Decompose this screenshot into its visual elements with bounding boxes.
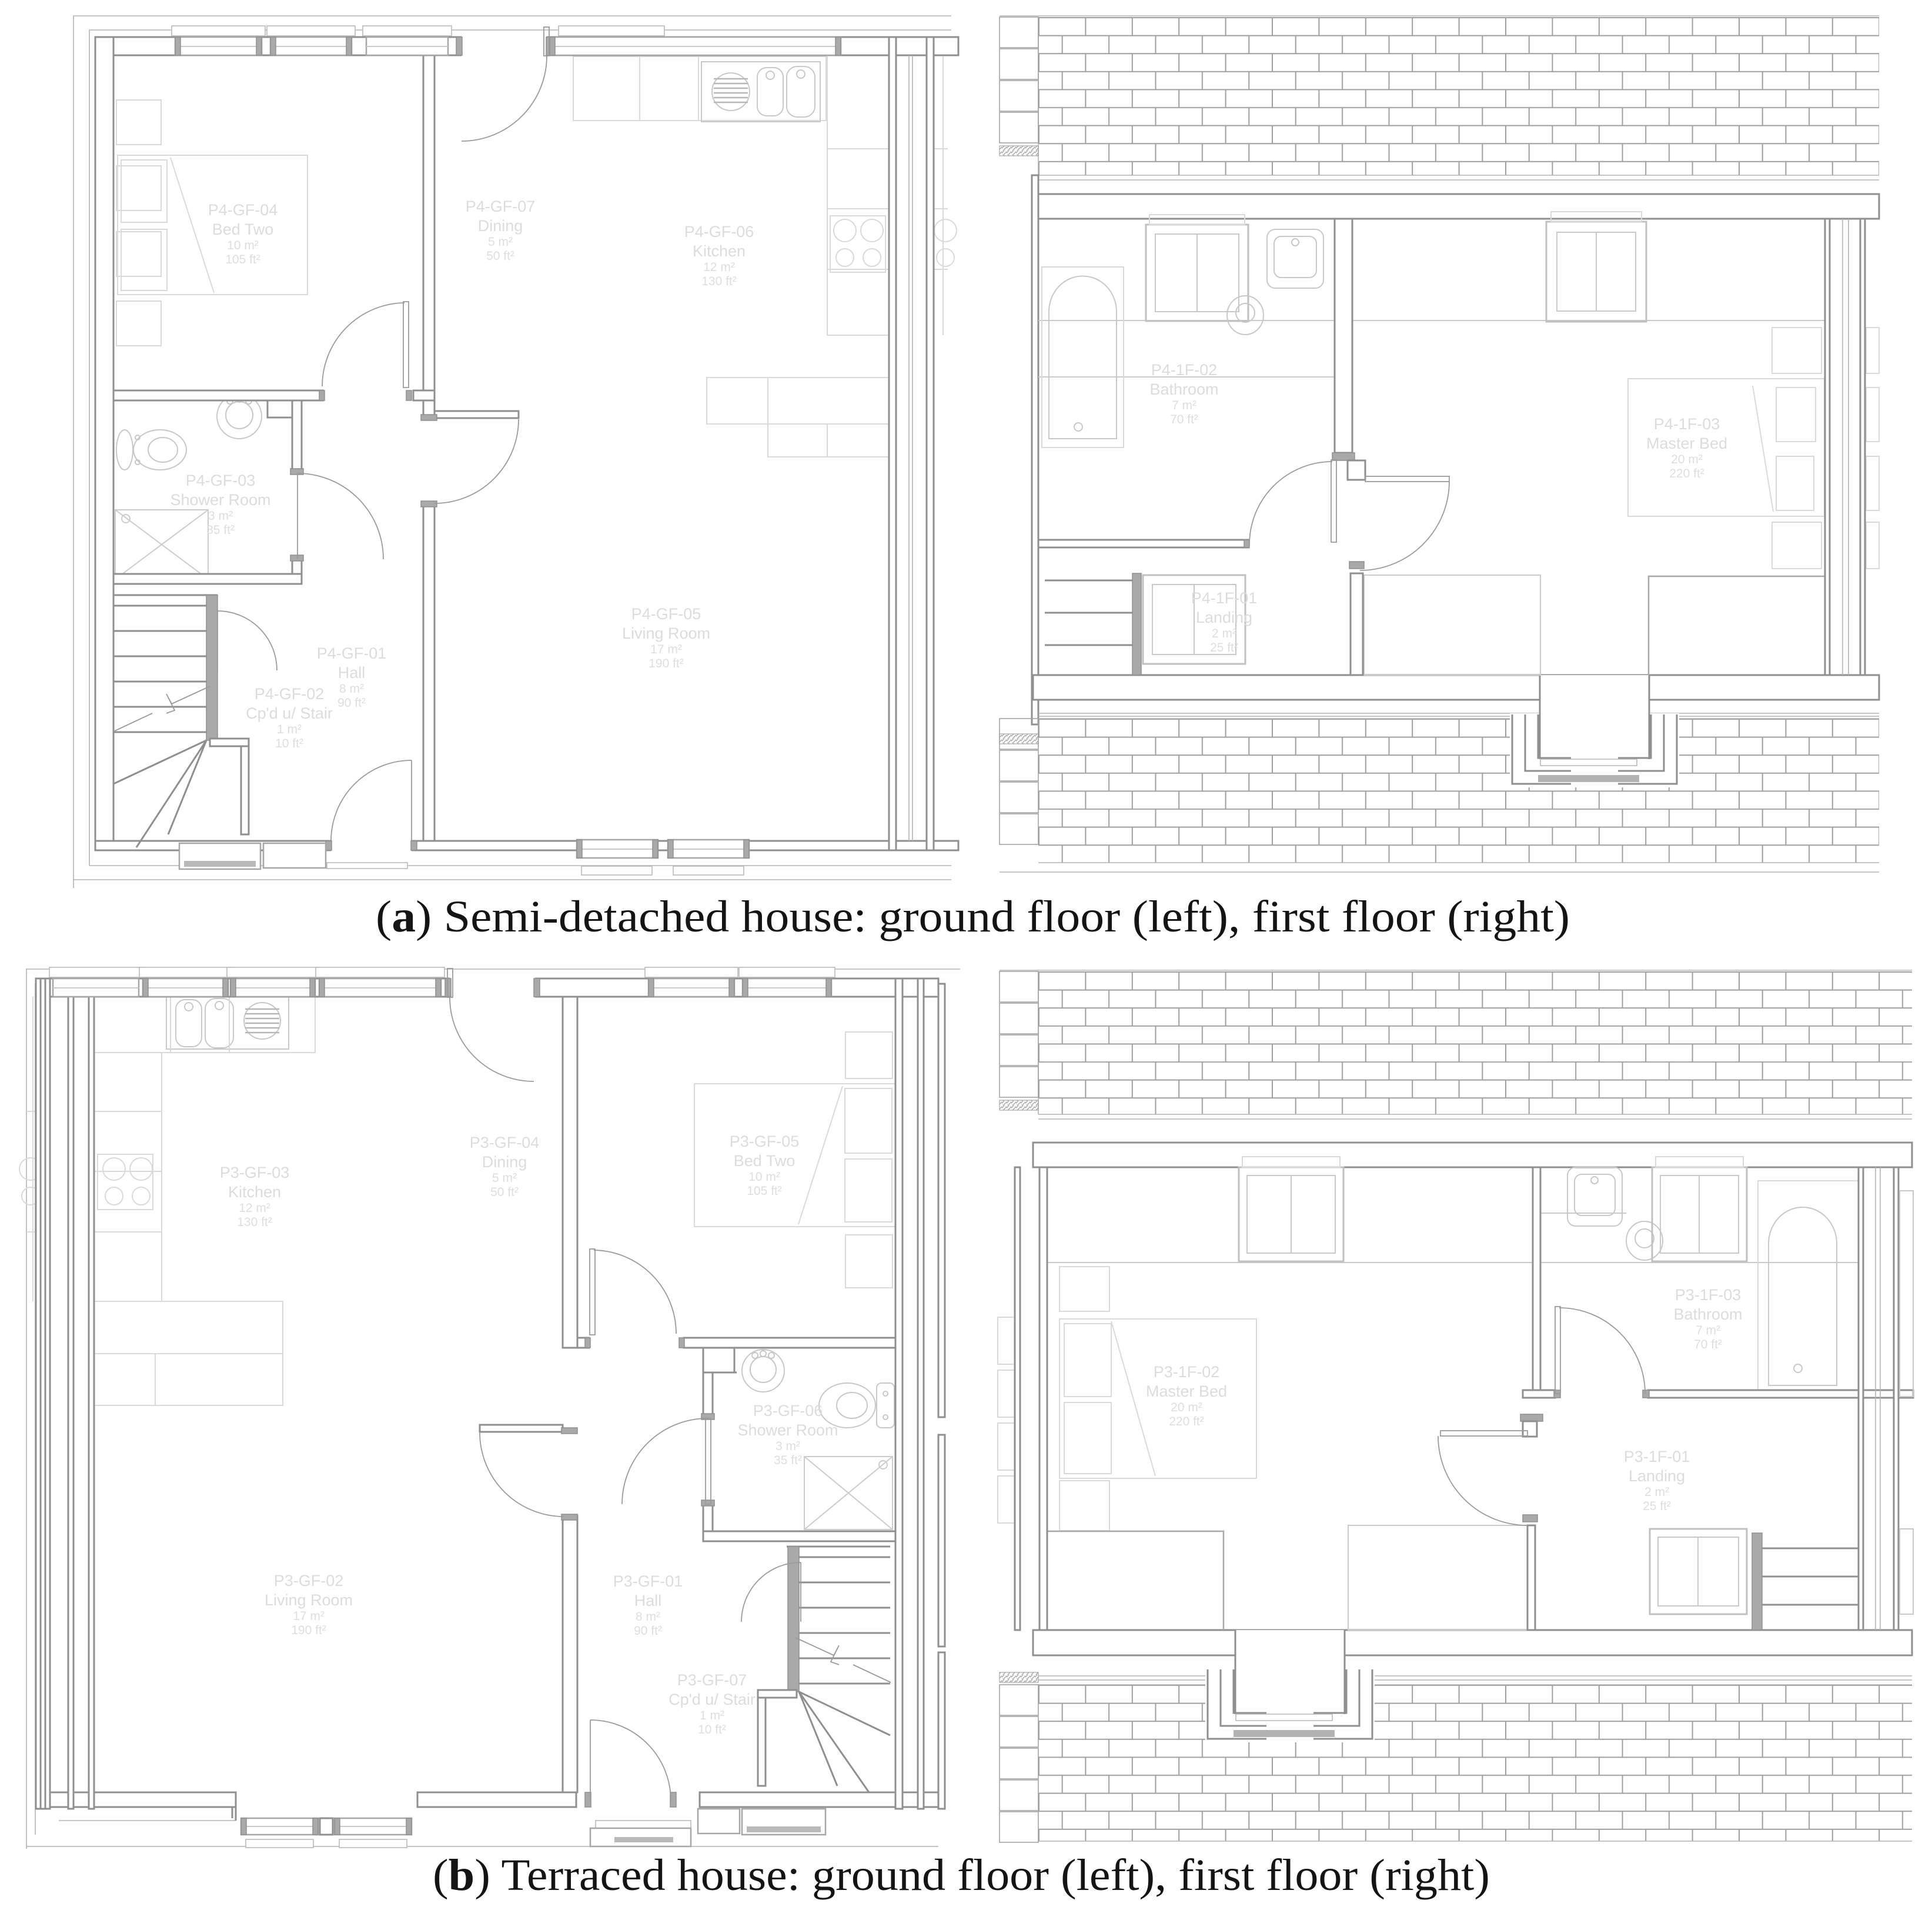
svg-text:P3-GF-01: P3-GF-01 [613, 1572, 683, 1590]
svg-text:10 m²: 10 m² [748, 1170, 780, 1184]
svg-text:220 ft²: 220 ft² [1169, 1415, 1204, 1428]
svg-text:Bed Two: Bed Two [734, 1152, 795, 1170]
svg-text:130 ft²: 130 ft² [237, 1215, 272, 1229]
svg-text:P3-GF-02: P3-GF-02 [274, 1572, 344, 1589]
svg-text:2 m²: 2 m² [1644, 1485, 1669, 1499]
svg-text:P3-1F-01: P3-1F-01 [1624, 1448, 1690, 1465]
svg-text:5 m²: 5 m² [488, 235, 513, 249]
svg-text:Shower Room: Shower Room [170, 491, 270, 509]
svg-text:50 ft²: 50 ft² [486, 249, 514, 263]
svg-text:P3-GF-04: P3-GF-04 [470, 1134, 540, 1151]
svg-text:Dining: Dining [482, 1153, 527, 1171]
svg-text:10 ft²: 10 ft² [698, 1723, 726, 1736]
svg-text:P4-1F-03: P4-1F-03 [1654, 415, 1720, 433]
svg-text:Hall: Hall [338, 664, 366, 682]
svg-text:12 m²: 12 m² [703, 260, 735, 274]
svg-text:P3-1F-03: P3-1F-03 [1675, 1286, 1742, 1304]
svg-text:17 m²: 17 m² [650, 643, 682, 656]
svg-text:35 ft²: 35 ft² [206, 523, 235, 537]
svg-text:Living Room: Living Room [622, 624, 710, 642]
svg-text:90 ft²: 90 ft² [337, 696, 366, 710]
svg-text:P3-GF-07: P3-GF-07 [677, 1671, 747, 1689]
svg-text:P4-GF-07: P4-GF-07 [466, 198, 536, 215]
svg-text:P3-GF-03: P3-GF-03 [220, 1164, 290, 1181]
svg-text:Bed Two: Bed Two [212, 221, 274, 238]
svg-text:220 ft²: 220 ft² [1669, 467, 1704, 480]
svg-text:1 m²: 1 m² [277, 723, 302, 736]
svg-text:90 ft²: 90 ft² [634, 1624, 662, 1638]
svg-text:10 m²: 10 m² [227, 239, 259, 252]
svg-text:25 ft²: 25 ft² [1210, 641, 1238, 654]
svg-text:P4-1F-02: P4-1F-02 [1151, 361, 1218, 379]
svg-text:35 ft²: 35 ft² [774, 1454, 802, 1467]
svg-text:8 m²: 8 m² [339, 682, 364, 696]
svg-text:Living Room: Living Room [265, 1591, 353, 1609]
svg-text:1 m²: 1 m² [700, 1709, 724, 1722]
svg-text:190 ft²: 190 ft² [649, 657, 684, 670]
svg-text:5 m²: 5 m² [492, 1171, 517, 1185]
svg-text:Cp'd u/ Stair: Cp'd u/ Stair [668, 1691, 756, 1708]
svg-text:20 m²: 20 m² [1671, 453, 1703, 466]
svg-text:P4-GF-01: P4-GF-01 [317, 644, 387, 662]
svg-text:Master Bed: Master Bed [1146, 1382, 1227, 1400]
svg-text:70 ft²: 70 ft² [1694, 1338, 1722, 1351]
svg-text:Bathroom: Bathroom [1673, 1305, 1742, 1323]
svg-text:130 ft²: 130 ft² [701, 275, 737, 288]
svg-text:3 m²: 3 m² [208, 509, 233, 523]
svg-text:50 ft²: 50 ft² [490, 1185, 519, 1199]
svg-text:Landing: Landing [1196, 609, 1252, 626]
svg-text:Landing: Landing [1629, 1467, 1685, 1485]
svg-text:P3-GF-05: P3-GF-05 [730, 1133, 800, 1150]
svg-text:17 m²: 17 m² [293, 1609, 325, 1623]
svg-text:105 ft²: 105 ft² [225, 253, 260, 266]
svg-text:Master Bed: Master Bed [1646, 435, 1727, 452]
svg-text:7 m²: 7 m² [1172, 399, 1196, 412]
svg-text:70 ft²: 70 ft² [1170, 413, 1198, 426]
svg-text:(b) Terraced house: ground flo: (b) Terraced house: ground floor (left),… [433, 1851, 1490, 1900]
svg-text:Bathroom: Bathroom [1149, 380, 1218, 398]
svg-text:P4-1F-01: P4-1F-01 [1191, 589, 1258, 607]
svg-text:7 m²: 7 m² [1696, 1324, 1720, 1337]
svg-text:190 ft²: 190 ft² [291, 1624, 326, 1637]
svg-text:P4-GF-06: P4-GF-06 [684, 223, 754, 241]
svg-text:P4-GF-03: P4-GF-03 [186, 472, 256, 489]
svg-text:P4-GF-02: P4-GF-02 [255, 685, 325, 703]
svg-text:Kitchen: Kitchen [228, 1183, 281, 1201]
svg-text:20 m²: 20 m² [1171, 1401, 1202, 1414]
svg-text:8 m²: 8 m² [636, 1610, 660, 1624]
svg-text:P3-1F-02: P3-1F-02 [1154, 1363, 1220, 1381]
svg-text:P4-GF-05: P4-GF-05 [631, 605, 701, 623]
svg-text:Dining: Dining [478, 217, 523, 235]
svg-text:25 ft²: 25 ft² [1643, 1499, 1671, 1513]
svg-text:P3-GF-06: P3-GF-06 [753, 1402, 823, 1420]
svg-text:Cp'd u/ Stair: Cp'd u/ Stair [246, 704, 333, 722]
svg-text:12 m²: 12 m² [239, 1201, 270, 1215]
svg-text:(a) Semi-detached house: groun: (a) Semi-detached house: ground floor (l… [376, 892, 1570, 941]
svg-text:P4-GF-04: P4-GF-04 [208, 201, 278, 219]
svg-text:2 m²: 2 m² [1212, 627, 1236, 640]
svg-text:10 ft²: 10 ft² [275, 737, 303, 750]
svg-text:3 m²: 3 m² [776, 1440, 800, 1453]
svg-text:Kitchen: Kitchen [693, 242, 746, 260]
svg-text:105 ft²: 105 ft² [747, 1184, 782, 1198]
svg-text:Hall: Hall [634, 1592, 662, 1609]
svg-text:Shower Room: Shower Room [737, 1421, 838, 1439]
